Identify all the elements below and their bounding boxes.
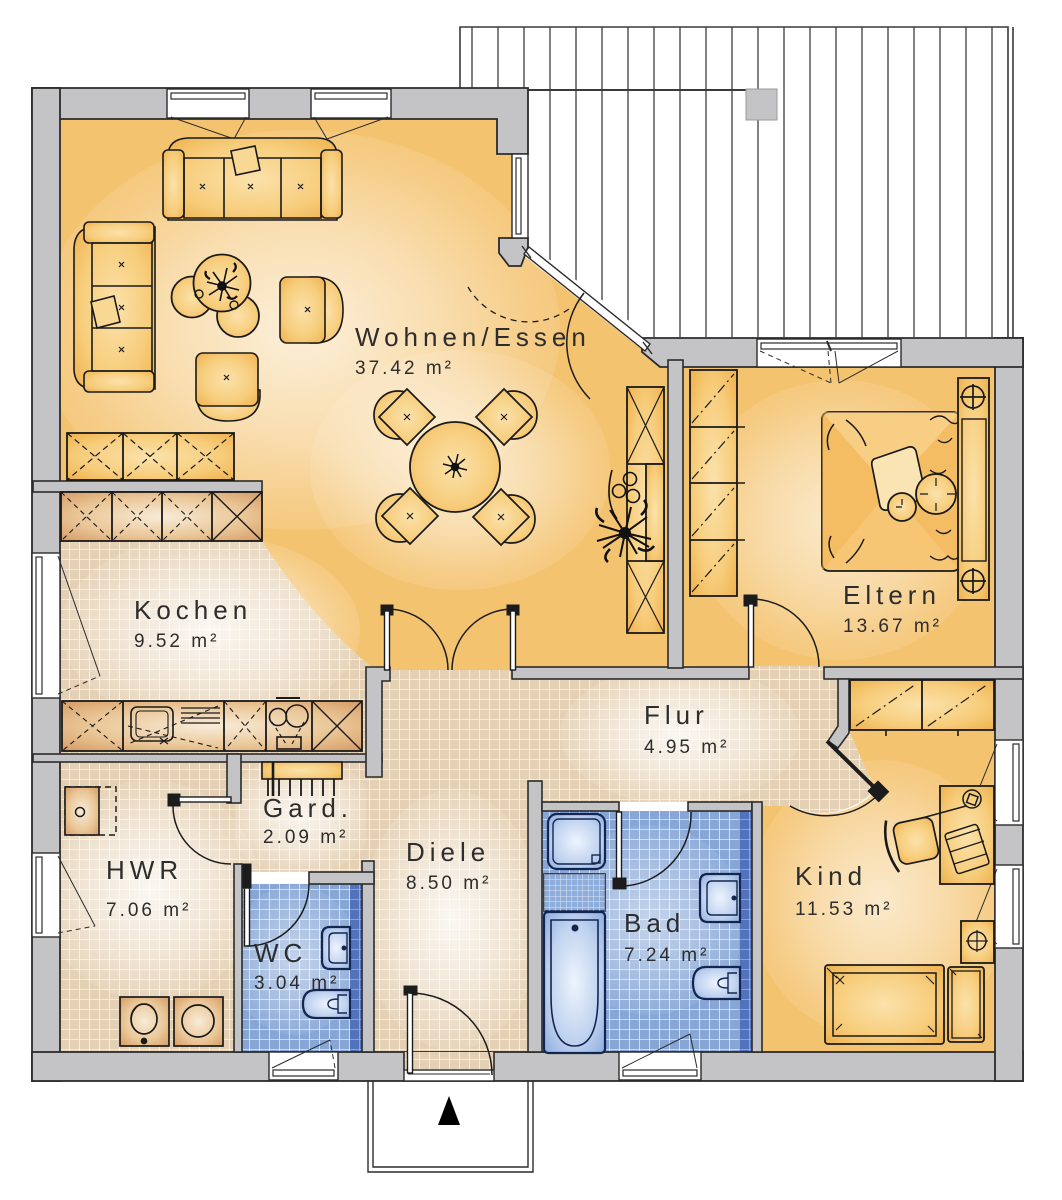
- svg-text:7.24 m²: 7.24 m²: [624, 945, 709, 966]
- svg-text:7.06 m²: 7.06 m²: [106, 900, 191, 921]
- svg-text:Gard.: Gard.: [263, 793, 353, 823]
- svg-text:9.52 m²: 9.52 m²: [134, 631, 219, 652]
- svg-text:Bad: Bad: [624, 908, 685, 938]
- svg-text:4.95 m²: 4.95 m²: [644, 737, 729, 758]
- svg-text:Kind: Kind: [795, 861, 867, 891]
- svg-text:Diele: Diele: [406, 837, 490, 867]
- svg-text:Eltern: Eltern: [843, 580, 941, 610]
- svg-text:3.04 m²: 3.04 m²: [254, 973, 339, 994]
- svg-text:8.50 m²: 8.50 m²: [406, 873, 491, 894]
- svg-text:2.09 m²: 2.09 m²: [263, 827, 348, 848]
- svg-text:11.53 m²: 11.53 m²: [795, 899, 893, 920]
- svg-text:Wohnen/Essen: Wohnen/Essen: [355, 322, 591, 352]
- svg-text:37.42 m²: 37.42 m²: [355, 358, 454, 379]
- svg-text:WC: WC: [254, 938, 307, 968]
- svg-text:13.67 m²: 13.67 m²: [843, 616, 942, 637]
- svg-text:Kochen: Kochen: [134, 595, 252, 625]
- svg-text:Flur: Flur: [644, 700, 709, 730]
- svg-text:HWR: HWR: [106, 855, 183, 885]
